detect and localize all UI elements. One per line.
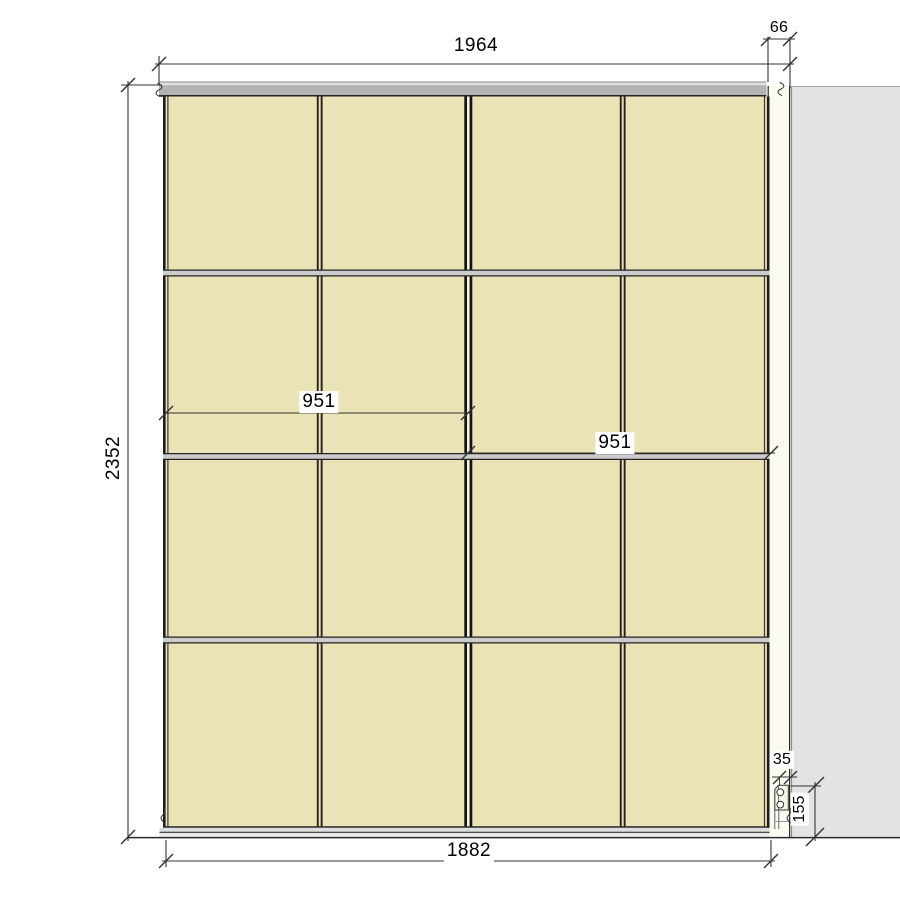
door-right-stile — [767, 97, 770, 828]
dim-right-gap-label: 66 — [767, 19, 791, 37]
dim-right-door-width-label: 951 — [595, 432, 634, 454]
door-overlap-stile — [464, 97, 467, 828]
dim-doors-span-label: 1882 — [444, 840, 494, 862]
dim-left-door-width-label: 951 — [299, 391, 338, 413]
dim-bracket-height-label: 155 — [791, 792, 809, 825]
drawing-svg — [0, 0, 900, 900]
top-track — [159, 82, 767, 97]
bracket-screw-hole — [777, 801, 784, 808]
dim-bracket-width-label: 35 — [770, 751, 794, 769]
dim-total-height-label: 2352 — [103, 433, 125, 483]
wall — [792, 86, 900, 838]
bottom-track — [160, 827, 770, 837]
technical-drawing-canvas: 1964 66 2352 951 951 35 155 1882 — [0, 0, 900, 900]
bracket-screw-hole — [777, 789, 784, 796]
dim-right-gap — [761, 32, 797, 82]
right-door-mullion — [620, 97, 622, 828]
left-door-mullion — [317, 97, 319, 828]
dim-total-height — [121, 78, 162, 844]
side-filler-panel — [768, 86, 791, 838]
dim-total-width-label: 1964 — [451, 35, 501, 57]
door-left-stile — [163, 97, 166, 828]
